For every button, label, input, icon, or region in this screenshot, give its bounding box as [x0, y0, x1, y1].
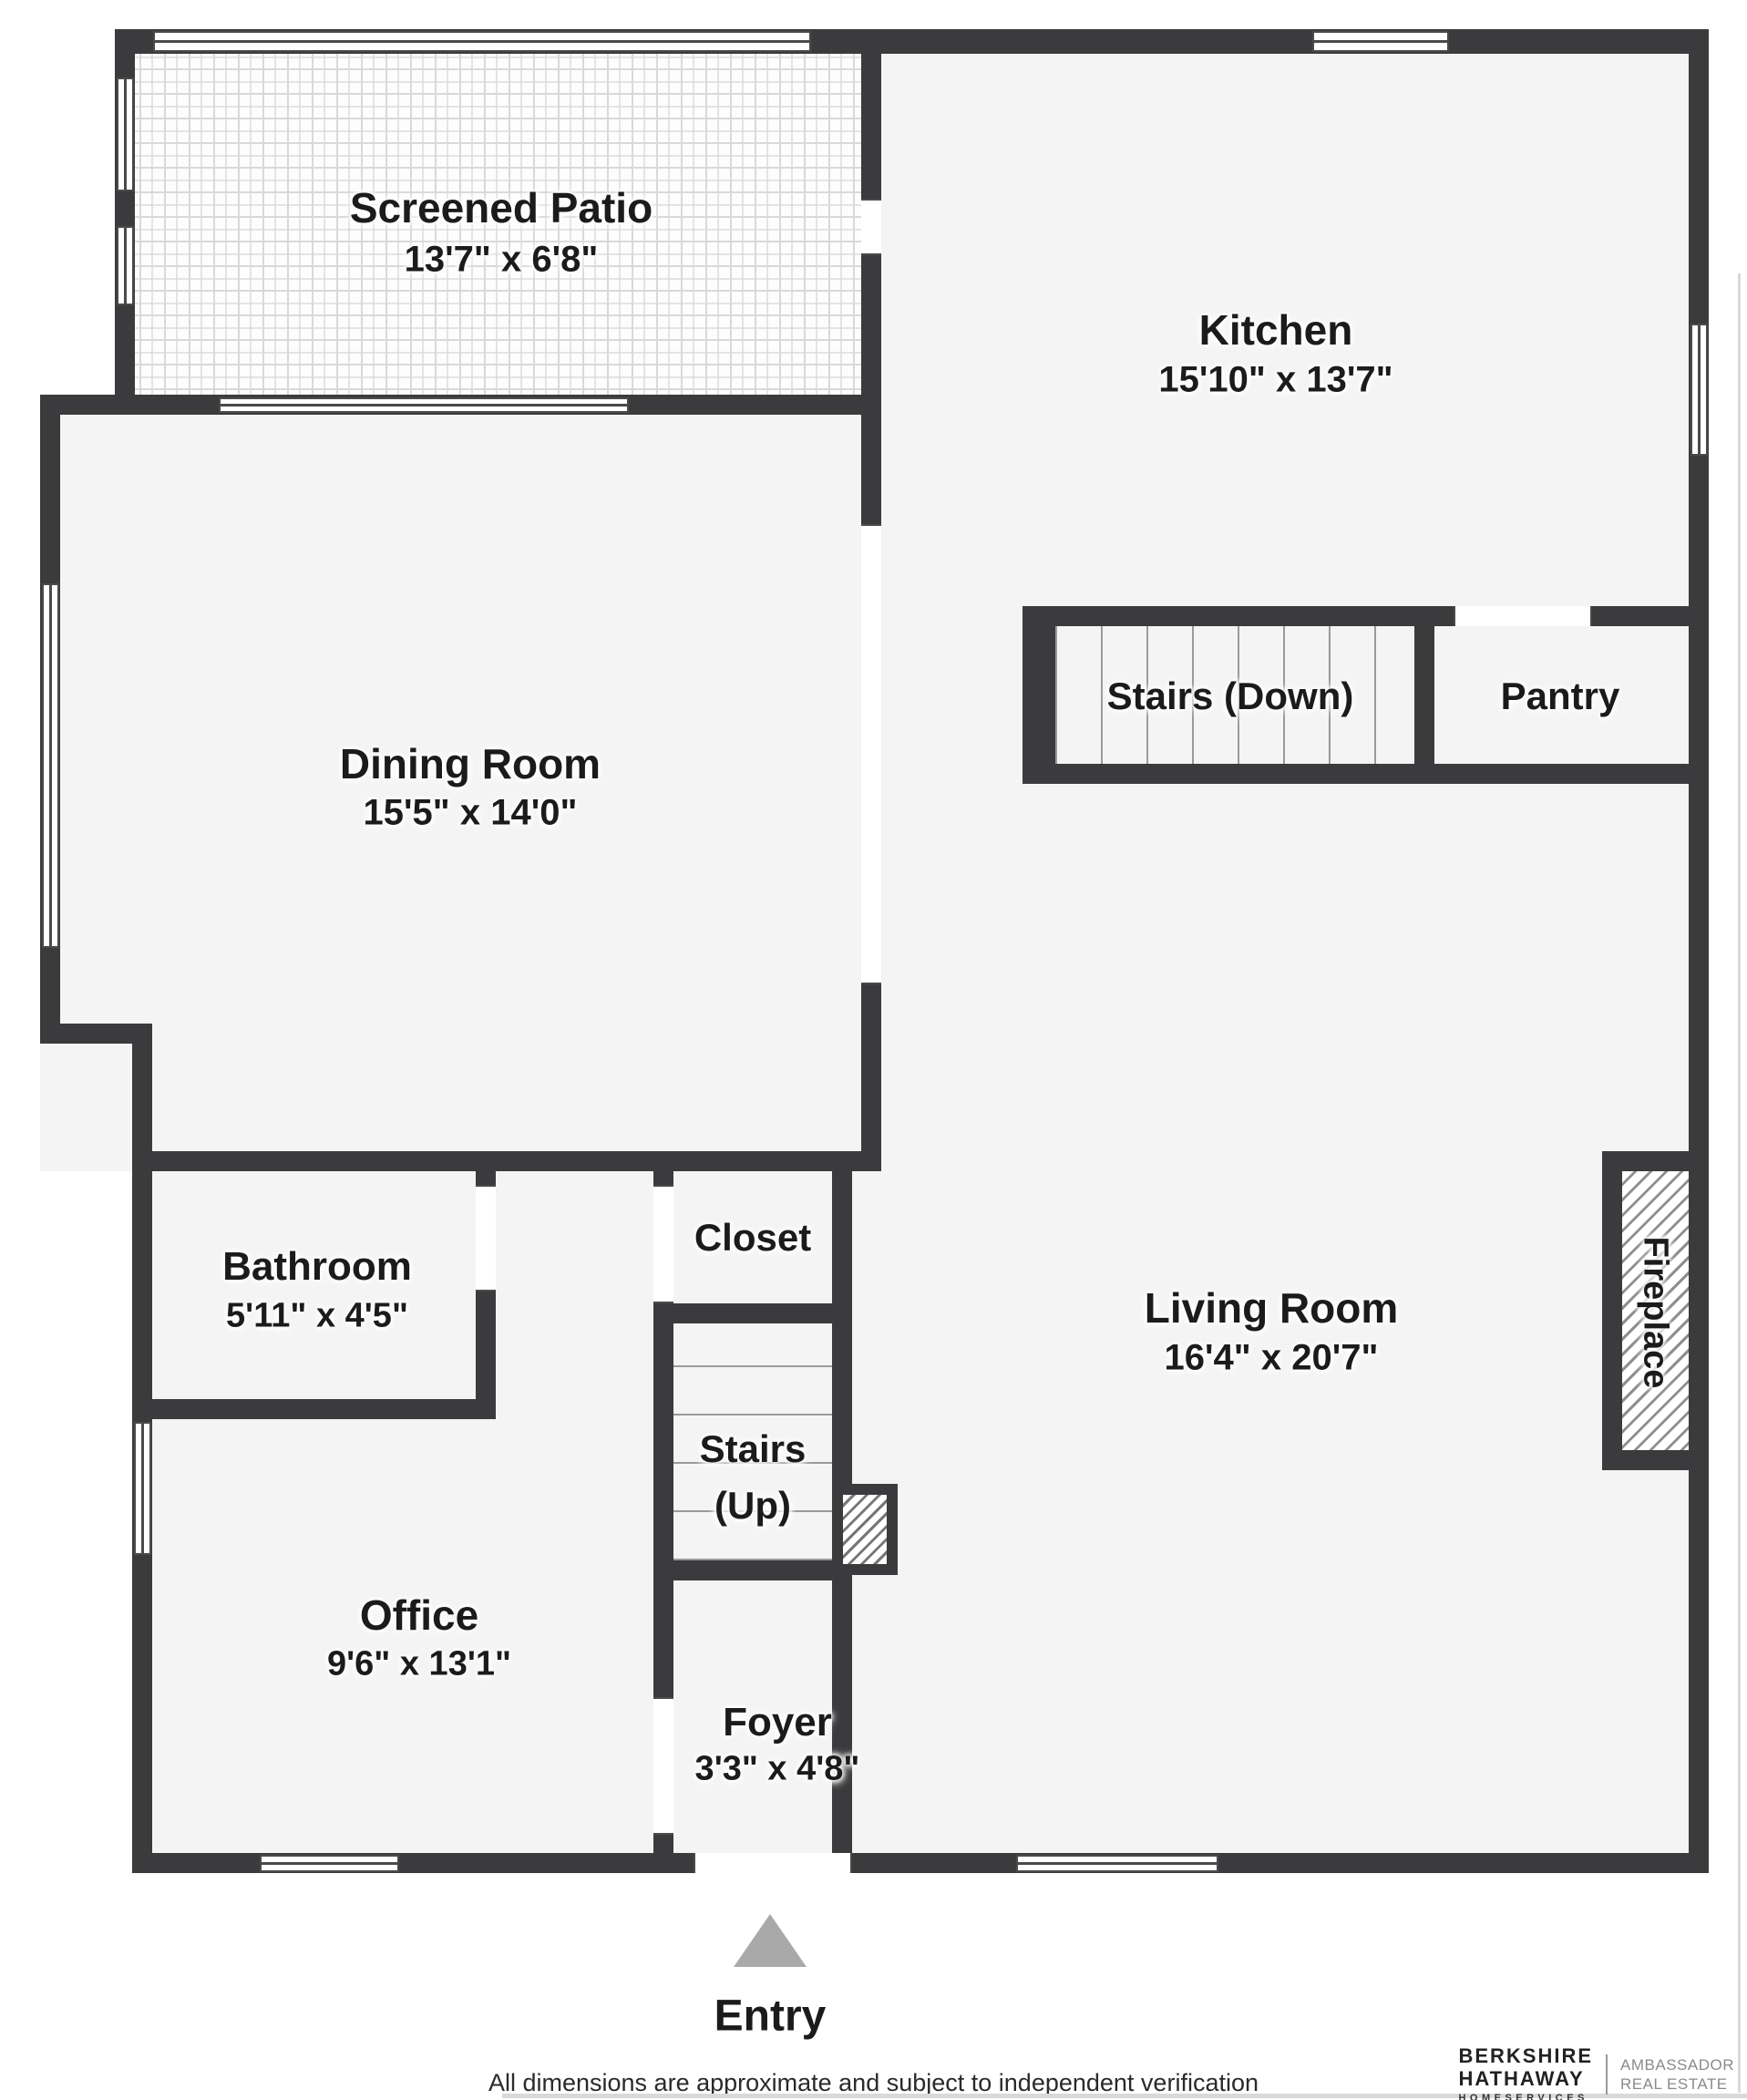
wall-stairs-down-left [1023, 606, 1055, 784]
room-dims-dining: 15'5" x 14'0" [364, 793, 578, 834]
wall-closet-bottom [653, 1303, 852, 1323]
window-living-bottom [1016, 1855, 1218, 1872]
wall-bathroom-bottom [132, 1399, 496, 1419]
entry-label: Entry [714, 1992, 827, 2042]
wall-stairs-down-top-b [1592, 606, 1709, 626]
room-dims-office: 9'6" x 13'1" [327, 1645, 511, 1684]
room-label-foyer: Foyer [723, 1700, 832, 1745]
wall-foyer-right [832, 1580, 852, 1853]
room-label-office: Office [360, 1590, 478, 1640]
window-patio-left-a [117, 77, 134, 191]
door-closet [653, 1185, 673, 1303]
wall-foyer-left-a [653, 1580, 673, 1697]
room-dims-living: 16'4" x 20'7" [1165, 1338, 1379, 1379]
floor-plan: Screened Patio 13'7" x 6'8" Kitchen 15'1… [0, 0, 1747, 2100]
room-label-fireplace: Fireplace [1636, 1237, 1675, 1389]
room-label-closet: Closet [694, 1216, 811, 1260]
window-kitchen-right [1690, 324, 1708, 456]
brand-logo: BERKSHIRE HATHAWAY HOMESERVICES AMBASSAD… [1458, 2044, 1734, 2100]
door-pantry [1454, 606, 1592, 626]
room-label-stairs-down: Stairs (Down) [1107, 674, 1354, 718]
wall-closet-left-a [653, 1171, 673, 1185]
room-label-dining: Dining Room [340, 739, 601, 788]
wall-dining-living-upper [861, 415, 881, 524]
brand-line-homeservices: HOMESERVICES [1458, 2093, 1593, 2100]
room-label-pantry: Pantry [1501, 674, 1620, 718]
wall-right [1689, 29, 1709, 1873]
room-label-bathroom: Bathroom [222, 1244, 412, 1290]
brand-berkshire-hathaway: BERKSHIRE HATHAWAY HOMESERVICES [1458, 2044, 1593, 2100]
wall-bathroom-right-a [476, 1171, 496, 1185]
room-dims-bathroom: 5'11" x 4'5" [226, 1297, 408, 1336]
wall-stairs-up-bottom [653, 1560, 852, 1580]
door-patio-kitchen [861, 199, 881, 255]
window-patio-left-b [117, 226, 134, 305]
room-dims-patio: 13'7" x 6'8" [405, 240, 599, 281]
window-office-left [134, 1422, 151, 1555]
brand-line-ambassador: AMBASSADOR [1620, 2055, 1734, 2074]
brand-ambassador: AMBASSADOR REAL ESTATE [1620, 2055, 1734, 2094]
brand-divider [1606, 2054, 1608, 2095]
opening-dining-living [861, 524, 881, 984]
wall-dining-bottom [132, 1151, 881, 1171]
window-office-bottom [260, 1855, 399, 1872]
wall-stairs-down-bottom [1023, 764, 1709, 784]
window-patio-dining [219, 397, 629, 413]
room-label-stairs-up: Stairs [700, 1427, 807, 1471]
chimney-hatch [843, 1495, 887, 1564]
window-kitchen-top [1312, 31, 1449, 52]
door-office-foyer [653, 1697, 673, 1835]
wall-foyer-left-b [653, 1835, 673, 1873]
right-edge-line [1738, 273, 1741, 2093]
wall-stairs-pantry-divider [1414, 626, 1434, 764]
wall-dining-living-lower [861, 984, 881, 1171]
door-entry [694, 1853, 852, 1873]
brand-line-berkshire: BERKSHIRE [1458, 2044, 1593, 2067]
window-patio-top [153, 31, 811, 52]
window-dining-left [42, 583, 59, 948]
room-dims-kitchen: 15'10" x 13'7" [1158, 360, 1392, 401]
brand-line-real-estate: REAL ESTATE [1620, 2074, 1734, 2094]
wall-patio-kitchen-upper [861, 54, 881, 199]
room-label-living: Living Room [1145, 1283, 1399, 1333]
room-label-stairs-up-2: (Up) [714, 1484, 791, 1528]
room-label-kitchen: Kitchen [1199, 305, 1353, 355]
entry-arrow-icon [734, 1914, 807, 1967]
wall-stairs-up-left [653, 1323, 673, 1580]
wall-stairs-down-top-a [1023, 606, 1454, 626]
brand-line-hathaway: HATHAWAY [1458, 2067, 1593, 2090]
wall-patio-kitchen-lower [861, 255, 881, 395]
room-label-patio: Screened Patio [350, 183, 653, 232]
door-bathroom [476, 1185, 496, 1292]
room-dims-foyer: 3'3" x 4'8" [695, 1750, 860, 1789]
wall-step [40, 1024, 152, 1044]
